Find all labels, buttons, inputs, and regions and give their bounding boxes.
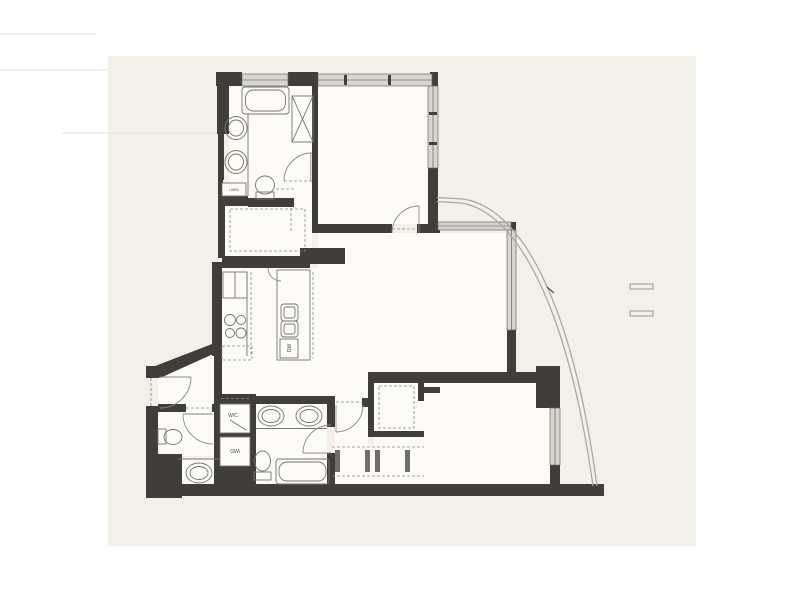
wc-label: W/C [228,413,238,419]
wall-segment-closet [418,383,424,401]
wall-segment [327,453,335,485]
wall-segment [214,354,222,396]
dishwasher-label: DW [287,344,293,353]
wall-segment [146,406,158,458]
linen-cabinet: LINEN [222,183,246,196]
floor-plan-page: LINEN DW [0,0,800,600]
wall-segment [212,262,222,356]
kitchen-island: DW [277,270,313,360]
wd-label: W/D [230,447,240,453]
closet-rod-post [335,450,340,472]
wall-segment-stub [424,387,440,393]
closet-rod-post [405,450,410,472]
linen-label: LINEN [229,188,239,192]
room-floor-walkin-closet-upper [222,206,312,258]
wall-segment [300,248,345,264]
island-counter [277,270,310,360]
room-floor-bedroom-1 [318,86,430,224]
wall-segment [217,86,229,134]
window-mullion [429,142,437,145]
wall-segment [327,404,335,427]
wall-segment-closet [368,383,374,437]
wall-segment [218,206,225,258]
wall-segment [536,366,560,408]
wall-segment [507,330,516,372]
wall-segment [428,168,438,230]
wall-segment [248,396,335,404]
window-mullion [388,75,391,85]
wall-segment [218,196,248,206]
room-floor-bath-vestibule [295,180,313,206]
wall-segment [288,72,318,86]
room-floor-powder-counter [178,458,220,486]
wall-segment-closet [368,431,424,437]
wall-segment [216,72,242,86]
wall-segment [218,134,224,180]
wall-segment [550,465,560,487]
window-mullion [429,112,437,115]
closet-rod-post [375,450,380,472]
refrigerator [223,272,247,298]
wall-segment [146,366,159,378]
room-floor-living [318,233,508,372]
window-mullion [344,75,347,85]
closet-rod-post [365,450,370,472]
wall-segment [312,224,392,233]
laundry-closet: W/C W/D [220,399,250,467]
walk-in-closet-box: W/C [220,404,250,433]
washer-dryer-box: W/D [220,437,250,466]
wall-segment [368,372,542,383]
wall-segment [222,256,310,268]
floor-plan-drawing: LINEN DW [0,0,800,600]
wall-segment-south [146,484,604,496]
